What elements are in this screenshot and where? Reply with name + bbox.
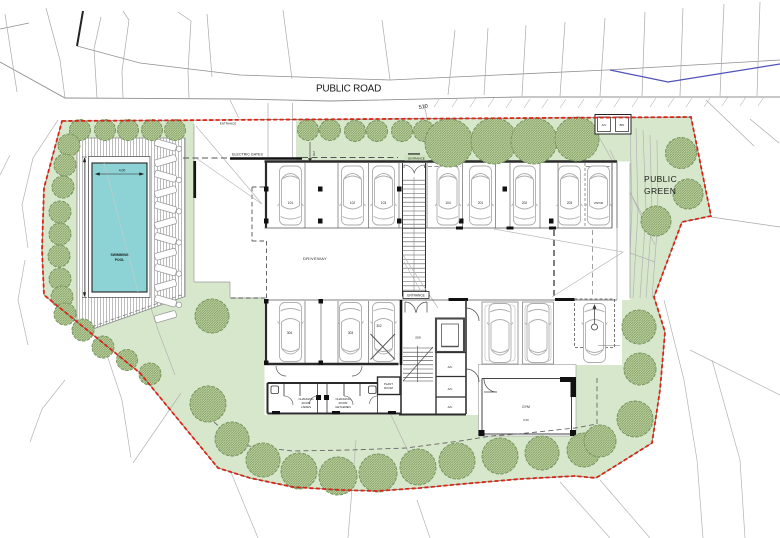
svg-text:304: 304 [287, 331, 293, 335]
svg-text:GYM: GYM [522, 405, 530, 409]
svg-text:A/C: A/C [602, 123, 607, 127]
svg-text:101: 101 [288, 201, 294, 205]
svg-text:A/C: A/C [448, 405, 453, 409]
svg-text:201: 201 [478, 201, 484, 205]
svg-text:104: 104 [445, 201, 451, 205]
svg-text:ELECTRIC GATES: ELECTRIC GATES [232, 153, 263, 157]
svg-text:A/C: A/C [448, 387, 453, 391]
svg-text:ENTRANCE: ENTRANCE [408, 156, 425, 160]
svg-text:BIN: BIN [620, 123, 625, 127]
svg-text:4.00: 4.00 [119, 169, 126, 173]
svg-text:102: 102 [350, 201, 356, 205]
svg-text:VISITOR: VISITOR [594, 202, 604, 205]
svg-text:PUBLIC: PUBLIC [644, 174, 677, 184]
svg-text:GETLEMEN: GETLEMEN [335, 405, 350, 409]
svg-text:POOL: POOL [115, 258, 125, 262]
svg-text:SWIMMING: SWIMMING [110, 253, 128, 257]
svg-text:203: 203 [567, 201, 573, 205]
svg-text:303: 303 [348, 331, 354, 335]
svg-text:302: 302 [376, 324, 382, 328]
svg-text:DRIVEWAY: DRIVEWAY [303, 256, 327, 261]
svg-text:202: 202 [522, 201, 528, 205]
svg-text:2.50: 2.50 [312, 151, 316, 157]
svg-text:103: 103 [381, 201, 387, 205]
svg-text:PUBLIC ROAD: PUBLIC ROAD [316, 84, 381, 95]
svg-text:ENTRANCE: ENTRANCE [407, 294, 425, 298]
svg-text:ROOM: ROOM [384, 386, 393, 390]
svg-text:LADIES: LADIES [301, 405, 311, 409]
svg-text:GREEN: GREEN [644, 186, 676, 196]
svg-text:2500: 2500 [415, 336, 421, 340]
svg-text:6.00: 6.00 [523, 418, 529, 422]
svg-text:ENTRANCE: ENTRANCE [220, 122, 237, 126]
svg-text:A/C: A/C [448, 365, 453, 369]
